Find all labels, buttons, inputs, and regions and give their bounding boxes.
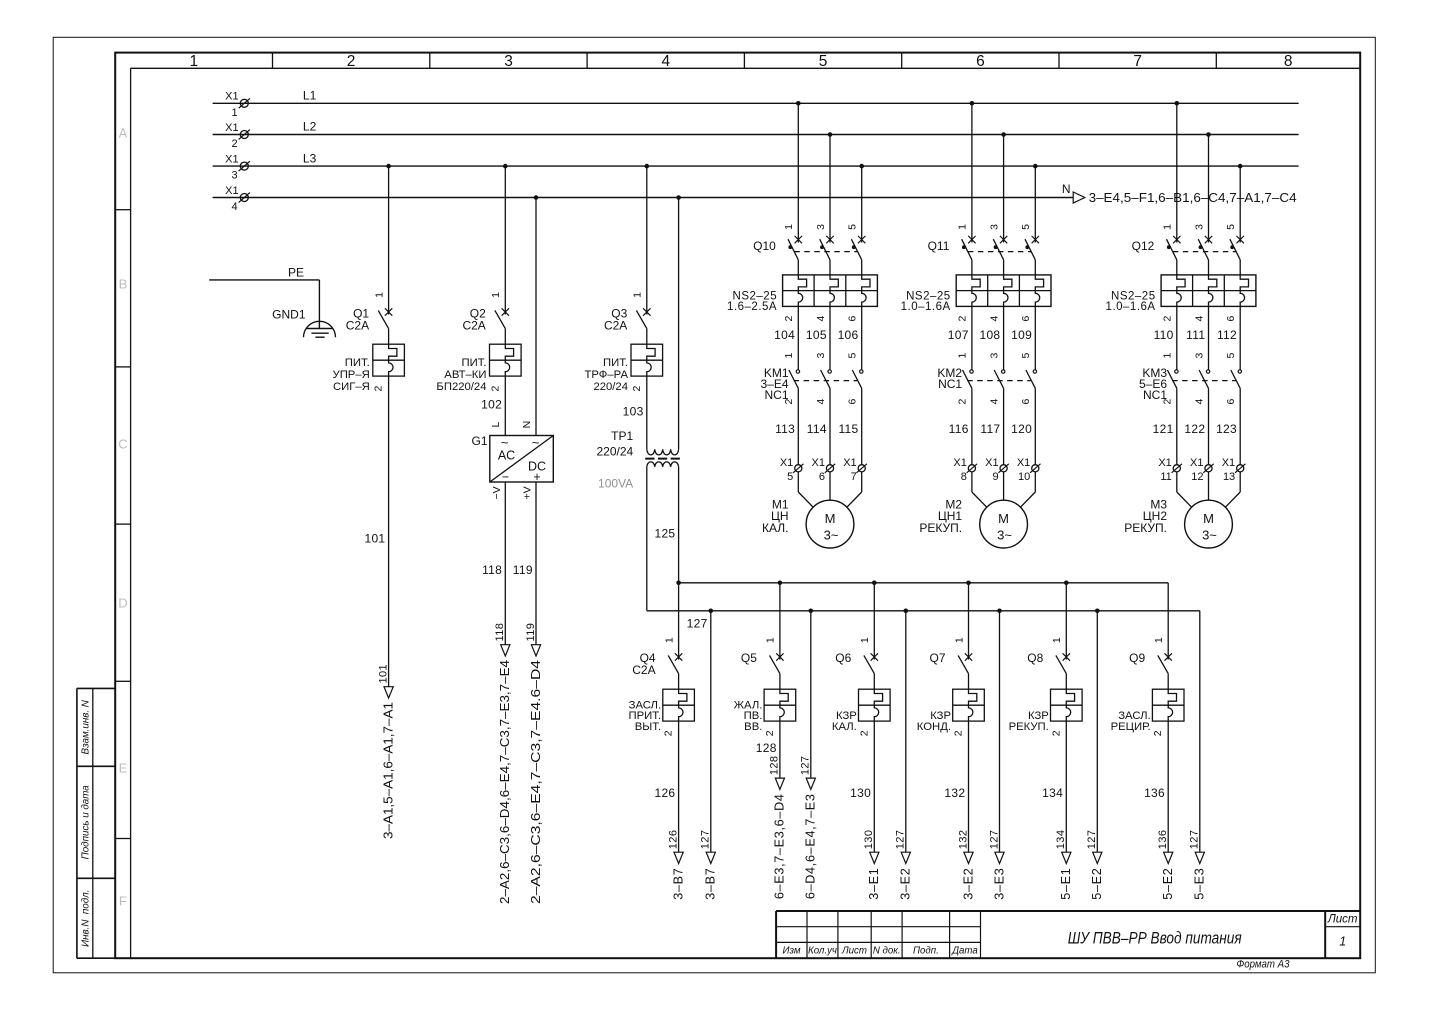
svg-text:109: 109 xyxy=(1011,328,1032,342)
svg-text:3: 3 xyxy=(815,353,827,359)
svg-text:+: + xyxy=(533,470,540,484)
svg-text:119: 119 xyxy=(525,623,537,642)
svg-text:1: 1 xyxy=(373,292,385,298)
svg-text:C2A: C2A xyxy=(632,663,655,677)
svg-text:134: 134 xyxy=(1055,830,1067,850)
svg-text:X1: X1 xyxy=(225,185,238,197)
svg-text:5: 5 xyxy=(847,353,859,359)
svg-text:4: 4 xyxy=(1193,399,1205,405)
svg-text:5: 5 xyxy=(787,471,793,483)
svg-text:116: 116 xyxy=(949,422,969,436)
svg-text:106: 106 xyxy=(838,328,859,342)
svg-text:L2: L2 xyxy=(303,120,317,134)
svg-text:1: 1 xyxy=(1051,637,1063,643)
svg-text:Q11: Q11 xyxy=(928,239,950,253)
svg-text:127: 127 xyxy=(687,617,708,631)
svg-text:2: 2 xyxy=(957,399,969,405)
svg-text:126: 126 xyxy=(667,830,679,850)
svg-text:2: 2 xyxy=(953,730,965,736)
svg-text:6: 6 xyxy=(1020,399,1032,405)
svg-text:102: 102 xyxy=(481,398,502,412)
svg-text:Изм: Изм xyxy=(783,946,801,957)
svg-text:3–B7: 3–B7 xyxy=(704,868,718,900)
svg-text:Дата: Дата xyxy=(951,946,978,957)
svg-text:2: 2 xyxy=(663,730,675,736)
svg-text:6–D4,6–E4,7–E3: 6–D4,6–E4,7–E3 xyxy=(804,793,818,899)
svg-text:A: A xyxy=(119,126,128,141)
svg-text:Инв.N подл.: Инв.N подл. xyxy=(81,890,92,947)
svg-text:Q10: Q10 xyxy=(753,239,776,253)
svg-text:1: 1 xyxy=(957,353,969,359)
svg-text:12: 12 xyxy=(1191,471,1203,483)
svg-text:L3: L3 xyxy=(303,151,317,165)
svg-text:5–E1: 5–E1 xyxy=(1059,868,1073,900)
svg-text:130: 130 xyxy=(863,830,875,850)
svg-text:101: 101 xyxy=(377,664,389,684)
svg-text:C2A: C2A xyxy=(346,319,369,333)
svg-text:Подпись и дата: Подпись и дата xyxy=(81,785,92,860)
svg-text:3: 3 xyxy=(815,224,827,230)
svg-text:4: 4 xyxy=(231,201,237,213)
svg-text:X1: X1 xyxy=(812,457,825,469)
svg-text:100VA: 100VA xyxy=(598,477,633,491)
svg-text:6: 6 xyxy=(1225,316,1237,322)
svg-text:3–E1: 3–E1 xyxy=(867,868,881,900)
svg-text:X1: X1 xyxy=(225,154,238,166)
svg-text:1: 1 xyxy=(1153,637,1165,643)
svg-text:121: 121 xyxy=(1153,422,1174,436)
svg-text:Q9: Q9 xyxy=(1129,651,1145,665)
svg-text:X1: X1 xyxy=(1190,457,1203,469)
svg-text:1.0–1.6A: 1.0–1.6A xyxy=(901,301,951,313)
svg-text:127: 127 xyxy=(800,756,812,776)
svg-text:4: 4 xyxy=(661,53,670,70)
svg-text:X1: X1 xyxy=(225,122,238,134)
svg-text:5–E3: 5–E3 xyxy=(1193,868,1207,900)
svg-text:РЕКУП.: РЕКУП. xyxy=(1009,721,1049,733)
svg-text:3: 3 xyxy=(1193,224,1205,230)
svg-text:N док.: N док. xyxy=(873,946,901,957)
svg-text:2: 2 xyxy=(1152,730,1164,736)
svg-text:C: C xyxy=(118,437,127,452)
svg-text:2: 2 xyxy=(858,730,870,736)
svg-text:115: 115 xyxy=(838,422,858,436)
svg-text:3: 3 xyxy=(988,353,1000,359)
svg-text:1: 1 xyxy=(953,637,965,643)
svg-text:−: − xyxy=(502,470,509,484)
svg-text:118: 118 xyxy=(482,563,502,577)
svg-text:127: 127 xyxy=(895,830,907,850)
svg-text:AC: AC xyxy=(498,449,515,463)
svg-text:1: 1 xyxy=(1162,224,1174,230)
svg-text:КАЛ.: КАЛ. xyxy=(832,721,857,733)
svg-text:10: 10 xyxy=(1018,471,1030,483)
svg-text:101: 101 xyxy=(364,532,385,546)
svg-text:Подп.: Подп. xyxy=(913,946,939,957)
svg-text:X1: X1 xyxy=(1158,457,1171,469)
svg-text:ТР1: ТР1 xyxy=(611,429,633,443)
svg-text:СИГ–Я: СИГ–Я xyxy=(333,381,370,393)
svg-text:4: 4 xyxy=(815,316,827,322)
svg-text:128: 128 xyxy=(769,756,781,776)
svg-text:3: 3 xyxy=(231,170,237,182)
svg-text:1: 1 xyxy=(231,107,237,119)
svg-text:2: 2 xyxy=(1050,730,1062,736)
svg-text:E: E xyxy=(119,761,128,776)
svg-text:130: 130 xyxy=(850,786,871,800)
svg-text:M: M xyxy=(1203,511,1214,526)
svg-text:3–A1,5–A1,6–A1,7–A1: 3–A1,5–A1,6–A1,7–A1 xyxy=(381,702,395,839)
svg-text:117: 117 xyxy=(980,422,1000,436)
svg-text:13: 13 xyxy=(1223,471,1235,483)
svg-text:NC1: NC1 xyxy=(1143,388,1167,402)
svg-text:122: 122 xyxy=(1184,422,1205,436)
svg-text:PE: PE xyxy=(288,266,304,280)
svg-text:7: 7 xyxy=(851,471,857,483)
svg-text:X1: X1 xyxy=(225,91,238,103)
svg-text:104: 104 xyxy=(774,328,795,342)
svg-text:103: 103 xyxy=(623,405,644,419)
svg-text:Кол.уч: Кол.уч xyxy=(808,946,837,957)
svg-text:127: 127 xyxy=(988,830,1000,850)
svg-text:X1: X1 xyxy=(1222,457,1235,469)
svg-text:КАЛ.: КАЛ. xyxy=(762,521,788,535)
svg-text:ШУ ПВВ–РР Ввод питания: ШУ ПВВ–РР Ввод питания xyxy=(1068,929,1242,947)
svg-text:111: 111 xyxy=(1186,328,1205,342)
svg-text:3–E2: 3–E2 xyxy=(899,868,913,900)
svg-text:113: 113 xyxy=(775,422,795,436)
svg-text:6: 6 xyxy=(1225,399,1237,405)
svg-text:2–A2,6–C3,6–E4,7–C3,7–E4.6–D4: 2–A2,6–C3,6–E4,7–C3,7–E4.6–D4 xyxy=(529,660,543,904)
svg-text:ПИТ.: ПИТ. xyxy=(461,357,486,369)
svg-text:108: 108 xyxy=(979,328,1000,342)
svg-text:2–A2,6–C3,6–D4,6–E4,7–C3,7–E3,: 2–A2,6–C3,6–D4,6–E4,7–C3,7–E3,7–E4 xyxy=(498,660,512,904)
svg-text:220/24: 220/24 xyxy=(593,381,628,393)
svg-text:X1: X1 xyxy=(1017,457,1030,469)
svg-text:X1: X1 xyxy=(953,457,966,469)
svg-text:ТРФ–РА: ТРФ–РА xyxy=(585,369,629,381)
svg-text:−V: −V xyxy=(491,486,503,499)
svg-text:8: 8 xyxy=(961,471,967,483)
svg-text:1: 1 xyxy=(1162,353,1174,359)
svg-text:5: 5 xyxy=(847,224,859,230)
svg-text:1: 1 xyxy=(859,637,871,643)
svg-text:6: 6 xyxy=(1020,316,1032,322)
svg-text:АВТ–КИ: АВТ–КИ xyxy=(444,369,486,381)
svg-text:Лист: Лист xyxy=(841,946,867,957)
svg-text:5: 5 xyxy=(1225,353,1237,359)
svg-text:X1: X1 xyxy=(985,457,998,469)
svg-text:132: 132 xyxy=(957,830,969,850)
svg-text:5–E2: 5–E2 xyxy=(1090,868,1104,900)
svg-text:105: 105 xyxy=(806,328,827,342)
svg-text:3~: 3~ xyxy=(824,528,839,543)
svg-text:128: 128 xyxy=(756,741,777,755)
svg-text:Q12: Q12 xyxy=(1132,239,1155,253)
svg-text:1: 1 xyxy=(490,292,502,298)
svg-text:7: 7 xyxy=(1133,53,1142,70)
svg-text:Q5: Q5 xyxy=(741,651,757,665)
svg-text:C2A: C2A xyxy=(604,319,627,333)
svg-text:110: 110 xyxy=(1154,328,1174,342)
svg-text:220/24: 220/24 xyxy=(596,445,633,459)
svg-text:1: 1 xyxy=(632,292,644,298)
svg-text:КОНД.: КОНД. xyxy=(917,721,951,733)
svg-text:2: 2 xyxy=(347,53,356,70)
svg-text:X1: X1 xyxy=(843,457,856,469)
svg-text:ВЫТ.: ВЫТ. xyxy=(635,721,661,733)
svg-text:L1: L1 xyxy=(303,89,317,103)
svg-text:136: 136 xyxy=(1157,830,1169,850)
svg-text:127: 127 xyxy=(1086,830,1098,850)
svg-text:G1: G1 xyxy=(471,434,487,448)
svg-text:~: ~ xyxy=(532,435,540,450)
svg-text:X1: X1 xyxy=(780,457,793,469)
svg-text:5: 5 xyxy=(1225,224,1237,230)
svg-text:5: 5 xyxy=(819,53,828,70)
svg-text:2: 2 xyxy=(764,730,776,736)
svg-text:2: 2 xyxy=(1162,316,1174,322)
svg-text:1: 1 xyxy=(189,53,198,70)
svg-text:N: N xyxy=(521,421,533,429)
svg-text:2: 2 xyxy=(489,386,501,392)
svg-text:N: N xyxy=(1062,182,1071,196)
svg-text:123: 123 xyxy=(1216,422,1237,436)
svg-text:11: 11 xyxy=(1160,471,1171,483)
svg-text:2: 2 xyxy=(373,386,385,392)
svg-text:1.6–2.5A: 1.6–2.5A xyxy=(727,301,777,313)
svg-text:118: 118 xyxy=(494,623,506,642)
svg-text:БП220/24: БП220/24 xyxy=(436,381,486,393)
svg-text:C2A: C2A xyxy=(462,319,485,333)
svg-text:1.0–1.6A: 1.0–1.6A xyxy=(1106,301,1156,313)
svg-text:Q8: Q8 xyxy=(1027,651,1043,665)
svg-text:1: 1 xyxy=(783,224,795,230)
svg-text:6: 6 xyxy=(819,471,825,483)
svg-text:134: 134 xyxy=(1042,786,1063,800)
svg-text:4: 4 xyxy=(988,399,1000,405)
svg-text:126: 126 xyxy=(654,786,675,800)
svg-text:5–E2: 5–E2 xyxy=(1161,868,1175,900)
svg-text:2: 2 xyxy=(231,138,237,150)
svg-text:5: 5 xyxy=(1020,353,1032,359)
svg-text:1: 1 xyxy=(1339,935,1346,949)
svg-text:M: M xyxy=(825,511,836,526)
svg-text:6: 6 xyxy=(847,399,859,405)
svg-text:РЕКУП.: РЕКУП. xyxy=(919,521,962,535)
svg-text:3~: 3~ xyxy=(997,528,1012,543)
svg-text:107: 107 xyxy=(948,328,969,342)
svg-text:125: 125 xyxy=(654,527,675,541)
svg-text:ПИТ.: ПИТ. xyxy=(603,357,628,369)
svg-text:3~: 3~ xyxy=(1202,528,1217,543)
svg-text:GND1: GND1 xyxy=(272,308,306,322)
svg-text:120: 120 xyxy=(1011,422,1032,436)
svg-text:1: 1 xyxy=(663,637,675,643)
svg-text:136: 136 xyxy=(1144,786,1165,800)
svg-text:F: F xyxy=(119,894,127,909)
svg-text:D: D xyxy=(118,596,127,611)
svg-text:Взам.инв. N: Взам.инв. N xyxy=(81,699,92,754)
svg-text:6–E3,7–E3,6–D4: 6–E3,7–E3,6–D4 xyxy=(773,793,787,899)
svg-text:Q6: Q6 xyxy=(835,651,851,665)
svg-text:NC1: NC1 xyxy=(938,377,962,391)
svg-text:3–E2: 3–E2 xyxy=(961,868,975,900)
svg-text:112: 112 xyxy=(1217,328,1237,342)
svg-text:Лист: Лист xyxy=(1327,914,1358,926)
svg-text:Формат А3: Формат А3 xyxy=(1237,959,1291,971)
svg-text:РЕЦИР.: РЕЦИР. xyxy=(1111,721,1151,733)
svg-text:9: 9 xyxy=(992,471,998,483)
svg-text:M: M xyxy=(998,511,1009,526)
svg-text:3: 3 xyxy=(1193,353,1205,359)
svg-text:ВВ.: ВВ. xyxy=(744,721,762,733)
svg-text:РЕКУП.: РЕКУП. xyxy=(1124,521,1167,535)
svg-text:L: L xyxy=(490,422,502,428)
svg-text:114: 114 xyxy=(807,422,827,436)
svg-text:1: 1 xyxy=(783,353,795,359)
svg-text:127: 127 xyxy=(700,830,712,850)
svg-text:1: 1 xyxy=(765,637,777,643)
svg-text:3–E4,5–F1,6–B1,6–C4,7–A1,7–C4: 3–E4,5–F1,6–B1,6–C4,7–A1,7–C4 xyxy=(1089,190,1297,205)
svg-text:5: 5 xyxy=(1020,224,1032,230)
svg-text:4: 4 xyxy=(1193,316,1205,322)
svg-text:УПР–Я: УПР–Я xyxy=(333,369,370,381)
svg-text:Q7: Q7 xyxy=(929,651,945,665)
svg-text:127: 127 xyxy=(1189,830,1201,850)
svg-text:2: 2 xyxy=(957,316,969,322)
svg-text:4: 4 xyxy=(815,399,827,405)
svg-text:3–B7: 3–B7 xyxy=(671,868,685,900)
svg-text:4: 4 xyxy=(988,316,1000,322)
svg-text:1: 1 xyxy=(957,224,969,230)
svg-text:132: 132 xyxy=(944,786,965,800)
svg-text:8: 8 xyxy=(1284,53,1293,70)
svg-text:2: 2 xyxy=(783,316,795,322)
svg-text:6: 6 xyxy=(847,316,859,322)
svg-text:3–E3: 3–E3 xyxy=(992,868,1006,900)
svg-text:ПИТ.: ПИТ. xyxy=(345,357,370,369)
svg-text:119: 119 xyxy=(513,563,533,577)
svg-text:3: 3 xyxy=(504,53,513,70)
svg-text:NC1: NC1 xyxy=(764,388,788,402)
svg-text:6: 6 xyxy=(976,53,985,70)
svg-text:B: B xyxy=(119,277,128,292)
svg-text:3: 3 xyxy=(988,224,1000,230)
svg-text:2: 2 xyxy=(631,386,643,392)
svg-text:+V: +V xyxy=(522,486,534,499)
